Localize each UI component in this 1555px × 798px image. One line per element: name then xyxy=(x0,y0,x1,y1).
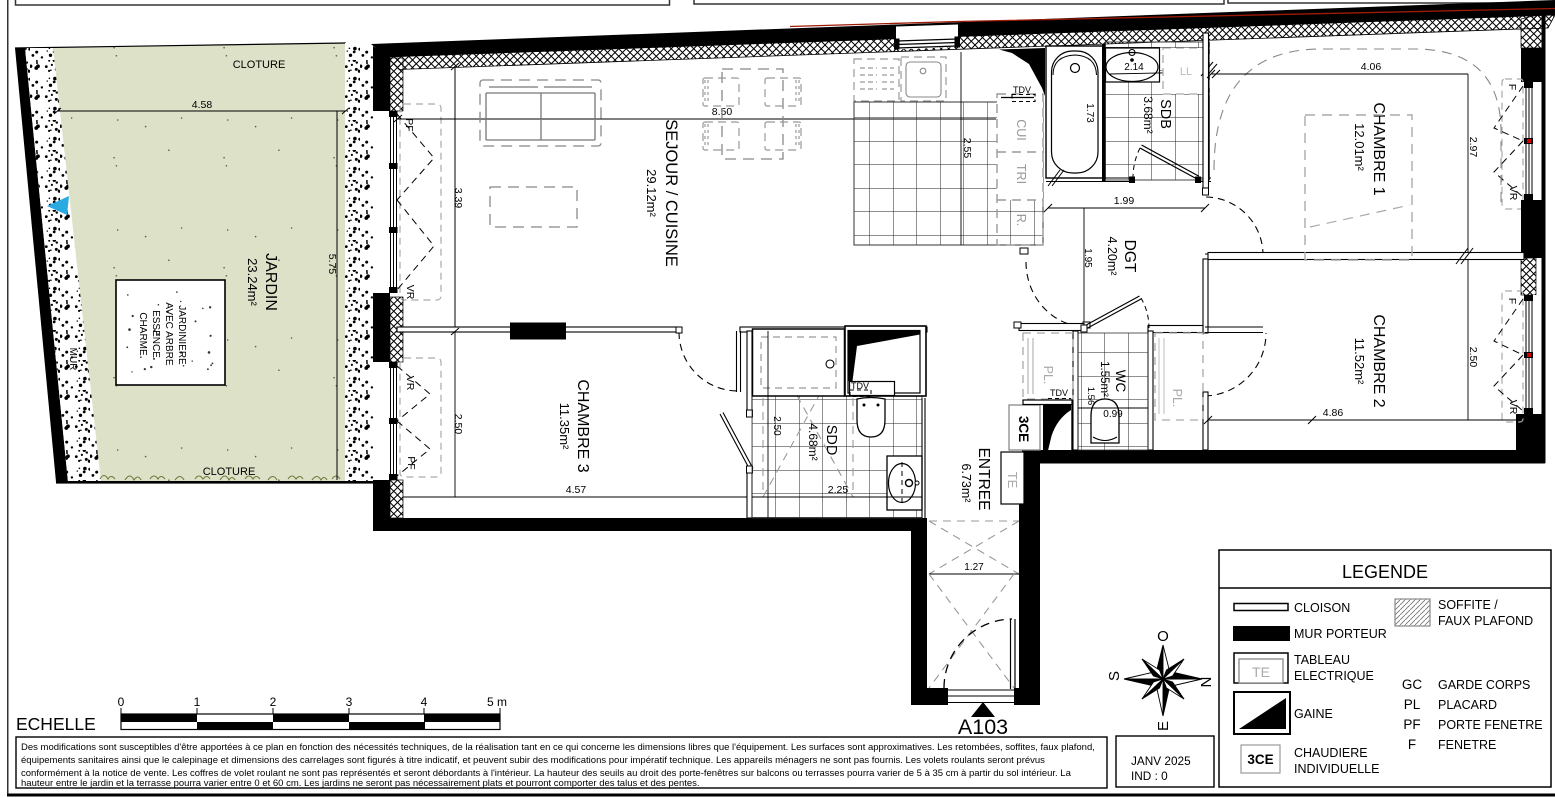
svg-text:ENTREE: ENTREE xyxy=(975,448,992,511)
svg-text:4.68m²: 4.68m² xyxy=(806,423,820,460)
svg-text:4.58: 4.58 xyxy=(192,99,213,111)
svg-text:3: 3 xyxy=(346,695,353,709)
svg-text:11.35m²: 11.35m² xyxy=(557,403,572,450)
svg-text:S: S xyxy=(1106,671,1123,681)
svg-text:SEJOUR / CUISINE: SEJOUR / CUISINE xyxy=(662,119,680,267)
svg-text:PL.: PL. xyxy=(1041,366,1055,385)
svg-text:12.01m²: 12.01m² xyxy=(1352,123,1367,171)
svg-text:N: N xyxy=(1197,677,1214,688)
svg-text:CLOTURE: CLOTURE xyxy=(233,59,286,71)
svg-text:1.73: 1.73 xyxy=(1084,103,1095,123)
svg-text:F: F xyxy=(1506,298,1518,304)
svg-text:3.68m²: 3.68m² xyxy=(1141,96,1155,133)
svg-text:CLOISON: CLOISON xyxy=(1294,601,1350,615)
svg-text:FENETRE: FENETRE xyxy=(1438,738,1496,752)
svg-text:F: F xyxy=(1506,84,1518,90)
svg-text:VR: VR xyxy=(1507,400,1519,415)
svg-text:JANV 2025: JANV 2025 xyxy=(1131,754,1191,768)
svg-text:PL: PL xyxy=(1404,697,1421,712)
svg-text:VR: VR xyxy=(404,285,416,300)
svg-text:1.99: 1.99 xyxy=(1114,195,1135,207)
svg-text:ELECTRIQUE: ELECTRIQUE xyxy=(1294,669,1374,683)
svg-text:3CE: 3CE xyxy=(1016,416,1031,442)
svg-text:CHARME: CHARME xyxy=(137,312,148,356)
svg-text:23.24m²: 23.24m² xyxy=(245,258,260,306)
svg-text:PORTE FENETRE: PORTE FENETRE xyxy=(1438,718,1543,732)
svg-text:PF: PF xyxy=(403,118,415,131)
svg-text:GC: GC xyxy=(1402,677,1423,692)
svg-text:4.06: 4.06 xyxy=(1361,61,1382,73)
svg-text:INDIVIDUELLE: INDIVIDUELLE xyxy=(1294,762,1379,776)
svg-text:2.50: 2.50 xyxy=(1467,347,1479,368)
svg-text:DGT: DGT xyxy=(1121,240,1138,273)
svg-text:TE: TE xyxy=(1005,472,1020,489)
svg-text:SDB: SDB xyxy=(1157,99,1173,129)
svg-text:SDD: SDD xyxy=(823,425,839,456)
svg-text:2.55: 2.55 xyxy=(961,138,973,159)
svg-text:4.57: 4.57 xyxy=(566,484,587,496)
svg-text:PF: PF xyxy=(1403,717,1420,732)
svg-text:2.50: 2.50 xyxy=(452,414,464,435)
svg-text:F: F xyxy=(1408,737,1416,752)
svg-text:GARDE CORPS: GARDE CORPS xyxy=(1438,678,1530,692)
svg-text:FAUX PLAFOND: FAUX PLAFOND xyxy=(1438,614,1533,628)
svg-text:SOFFITE /: SOFFITE / xyxy=(1438,598,1498,612)
svg-text:CHAMBRE 3: CHAMBRE 3 xyxy=(574,379,591,472)
svg-text:TE: TE xyxy=(1252,664,1270,680)
svg-text:TRI: TRI xyxy=(1014,164,1028,184)
svg-text:PL.: PL. xyxy=(1170,389,1184,408)
svg-text:2.97: 2.97 xyxy=(1467,137,1479,158)
svg-text:CHAMBRE 2: CHAMBRE 2 xyxy=(1370,314,1387,407)
svg-text:4: 4 xyxy=(421,695,428,709)
svg-text:1.56: 1.56 xyxy=(1085,387,1096,406)
svg-text:MUR: MUR xyxy=(67,348,78,371)
svg-text:Des modifications sont suscept: Des modifications sont susceptibles d'êt… xyxy=(21,742,1095,753)
svg-text:TDV: TDV xyxy=(1013,85,1031,95)
svg-text:CHAMBRE 1: CHAMBRE 1 xyxy=(1370,102,1387,195)
svg-text:ESSENCE: ESSENCE xyxy=(150,310,161,358)
svg-text:AVEC ARBRE: AVEC ARBRE xyxy=(163,302,174,365)
svg-text:5 m: 5 m xyxy=(487,695,507,709)
svg-text:1.95: 1.95 xyxy=(1082,248,1093,268)
svg-text:O: O xyxy=(1157,628,1169,645)
svg-text:PLACARD: PLACARD xyxy=(1438,698,1497,712)
svg-text:5.75: 5.75 xyxy=(326,254,338,275)
svg-text:TDV: TDV xyxy=(1050,388,1068,398)
svg-text:2.50: 2.50 xyxy=(771,416,782,436)
svg-text:3CE: 3CE xyxy=(1247,752,1273,767)
svg-text:CUI: CUI xyxy=(1014,119,1028,141)
svg-text:MUR PORTEUR: MUR PORTEUR xyxy=(1294,627,1387,641)
svg-text:R.: R. xyxy=(1014,214,1028,227)
svg-text:6.73m²: 6.73m² xyxy=(959,464,973,503)
svg-text:2.14: 2.14 xyxy=(1124,62,1144,73)
svg-text:29.12m²: 29.12m² xyxy=(644,169,659,217)
svg-text:E: E xyxy=(1155,721,1172,731)
svg-text:TABLEAU: TABLEAU xyxy=(1294,653,1350,667)
svg-text:équipements sanitaires ainsi q: équipements sanitaires ainsi que le cale… xyxy=(21,755,1045,766)
svg-text:0: 0 xyxy=(118,695,125,709)
svg-text:2.25: 2.25 xyxy=(828,484,849,496)
svg-text:LL: LL xyxy=(1180,66,1192,78)
svg-text:11.52m²: 11.52m² xyxy=(1352,338,1367,385)
svg-text:JARDINIERE: JARDINIERE xyxy=(176,305,187,365)
svg-text:PF: PF xyxy=(405,456,417,469)
svg-text:2: 2 xyxy=(270,695,277,709)
svg-text:A103: A103 xyxy=(958,715,1008,739)
svg-text:JARDIN: JARDIN xyxy=(262,253,279,311)
svg-text:VR: VR xyxy=(1507,186,1519,201)
svg-text:ECHELLE: ECHELLE xyxy=(16,714,96,734)
svg-text:hauteur entre le jardin et la: hauteur entre le jardin et la terrasse p… xyxy=(21,778,700,789)
svg-text:4.20m²: 4.20m² xyxy=(1105,237,1119,276)
svg-text:LEGENDE: LEGENDE xyxy=(1342,562,1428,582)
svg-text:1.55m²: 1.55m² xyxy=(1098,361,1110,397)
svg-text:CHAUDIERE: CHAUDIERE xyxy=(1294,746,1368,760)
svg-text:3.39: 3.39 xyxy=(452,188,464,209)
svg-text:VR: VR xyxy=(404,376,416,391)
svg-text:IND : 0: IND : 0 xyxy=(1131,769,1168,783)
svg-text:WC: WC xyxy=(1113,370,1128,393)
svg-text:4.86: 4.86 xyxy=(1323,407,1344,419)
svg-text:0.99: 0.99 xyxy=(1103,409,1123,420)
svg-text:1.27: 1.27 xyxy=(964,562,984,573)
svg-text:1: 1 xyxy=(194,695,201,709)
svg-text:GAINE: GAINE xyxy=(1294,707,1333,721)
